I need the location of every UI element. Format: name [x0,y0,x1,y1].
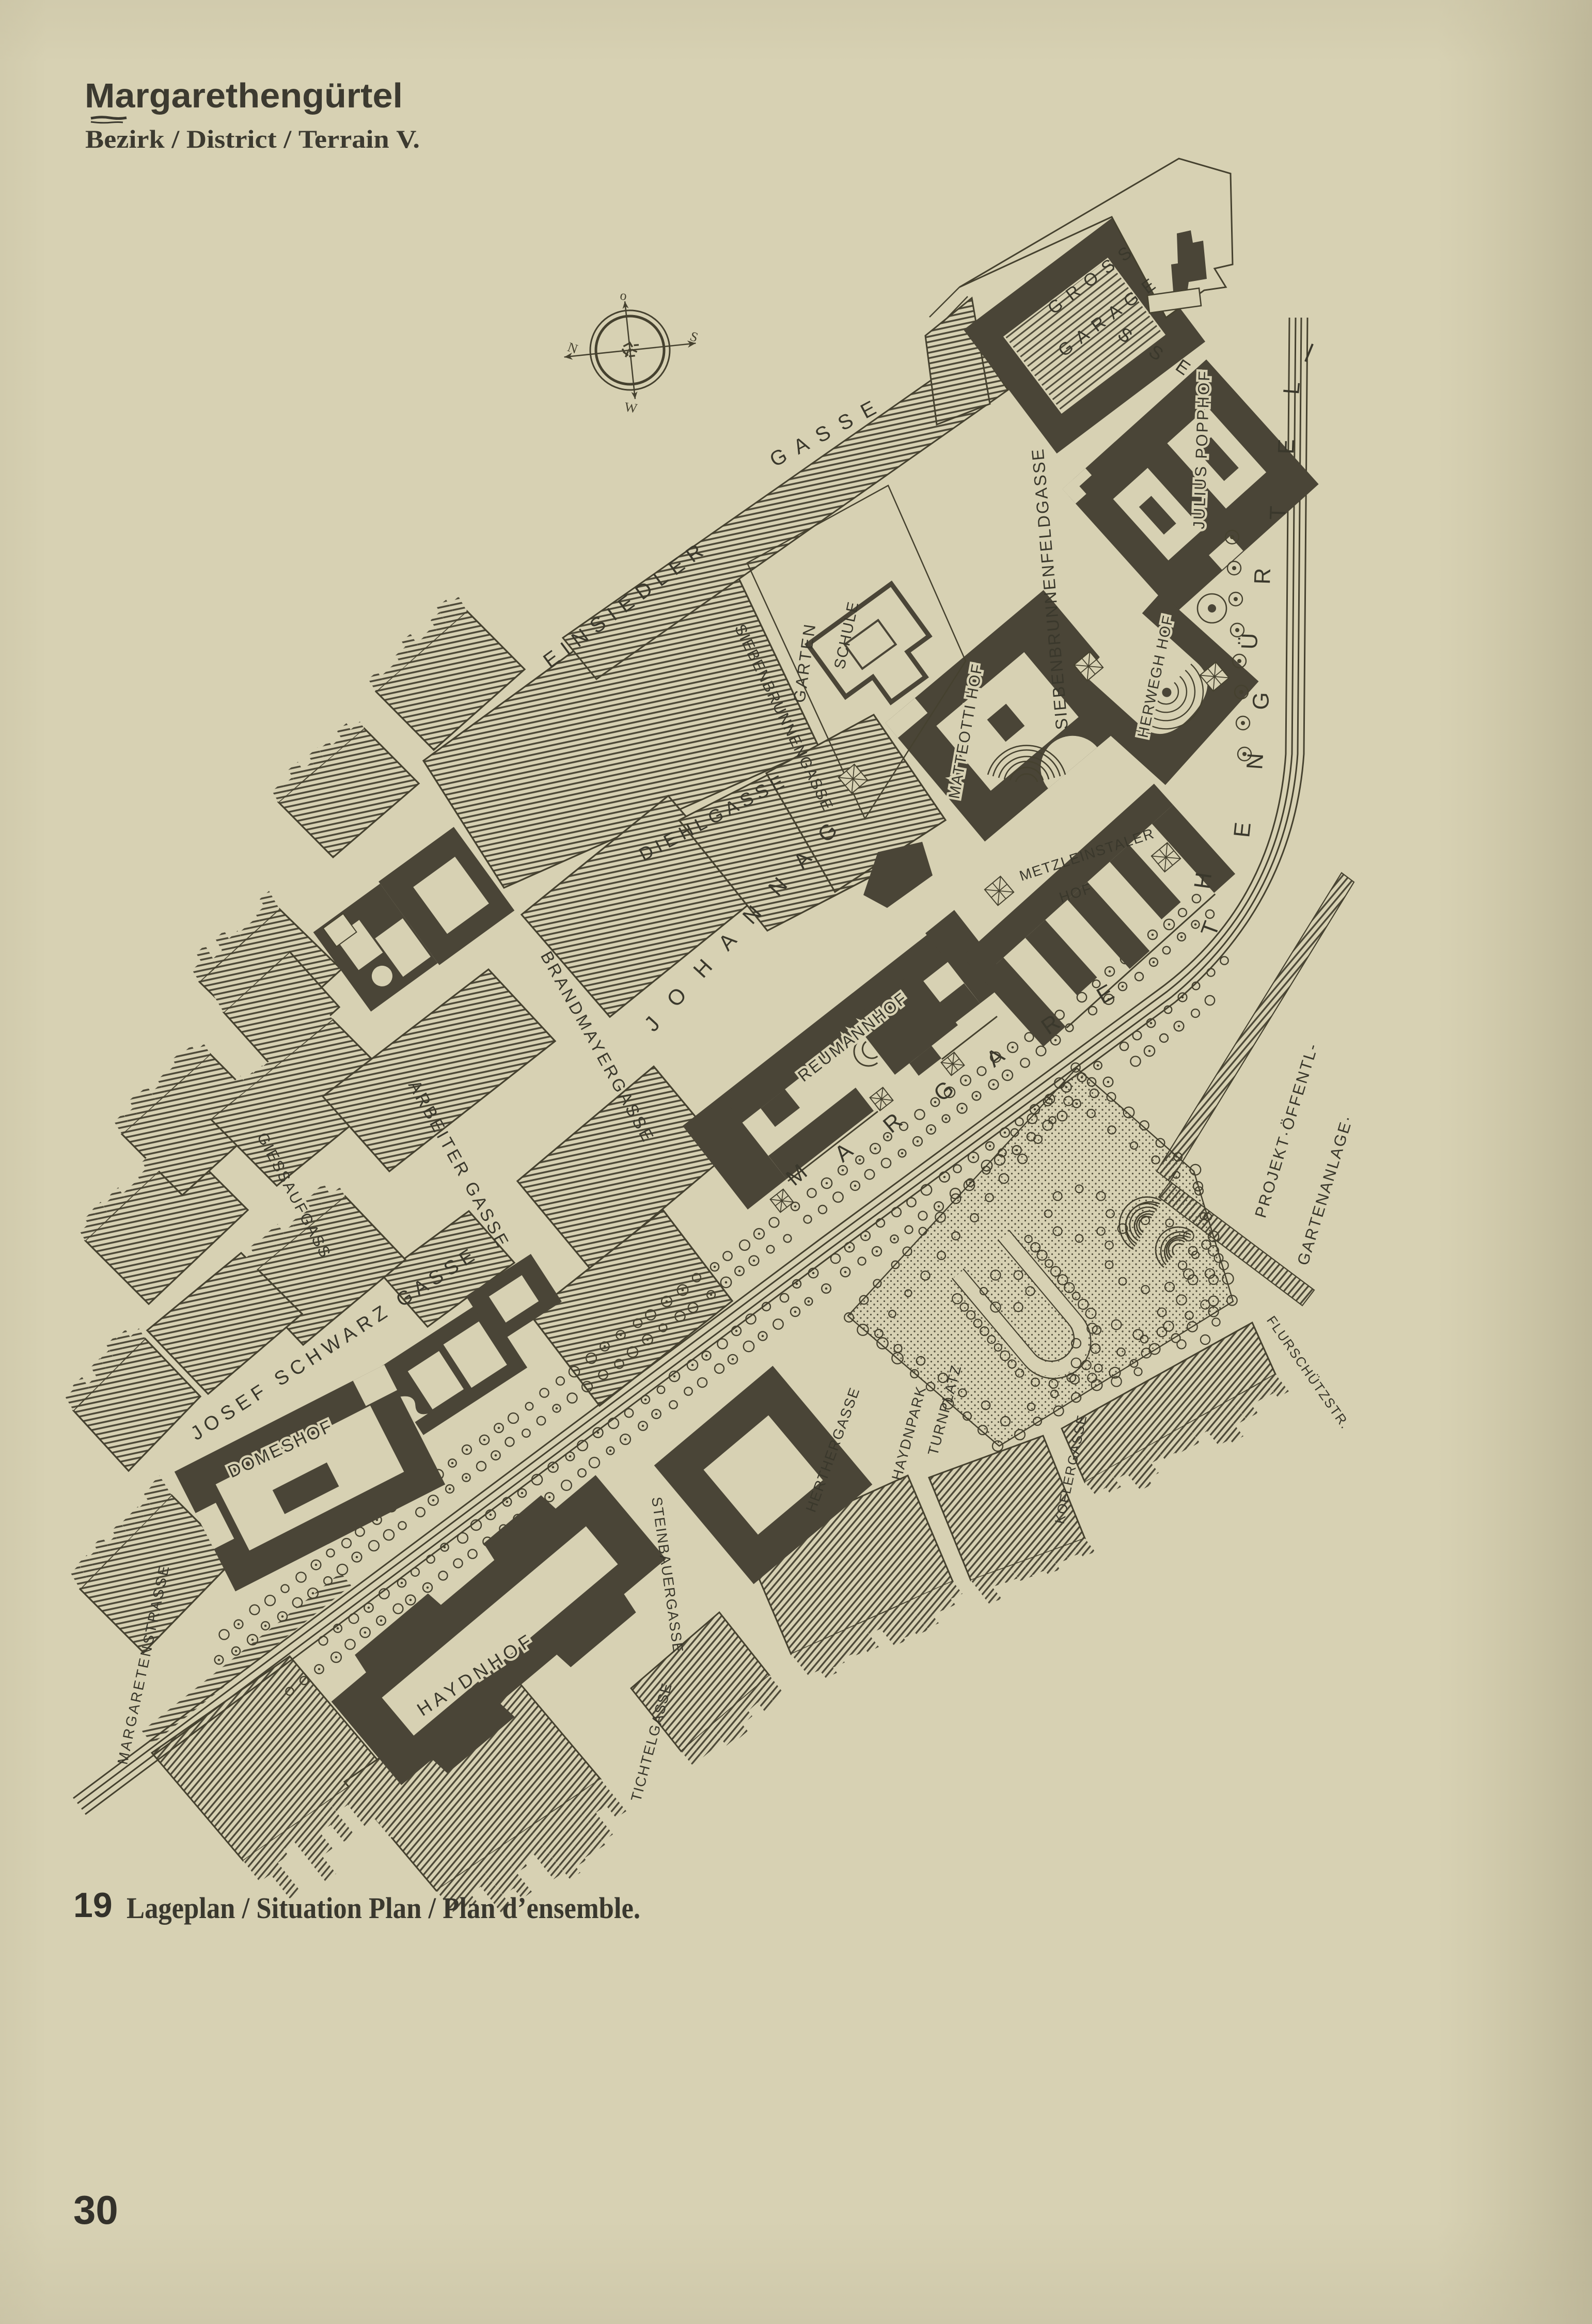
svg-text:Ü: Ü [1237,633,1263,650]
svg-text:Margarethengürtel: Margarethengürtel [85,76,403,115]
svg-text:Lageplan / Situation Plan / Pl: Lageplan / Situation Plan / Plan d’ensem… [127,1891,640,1925]
svg-text:30: 30 [73,2187,118,2233]
svg-text:H: H [1189,871,1217,890]
svg-text:E: E [1273,438,1299,454]
svg-text:19: 19 [73,1886,113,1925]
svg-text:G: G [1248,692,1274,710]
svg-text:N: N [1242,752,1268,771]
svg-text:Bezirk / District / Terrain V.: Bezirk / District / Terrain V. [85,124,420,153]
svg-text:R: R [1250,568,1275,585]
svg-text:E: E [1229,821,1256,839]
svg-text:W: W [623,399,638,416]
svg-text:L: L [1279,381,1305,396]
svg-text:T: T [1265,506,1291,521]
